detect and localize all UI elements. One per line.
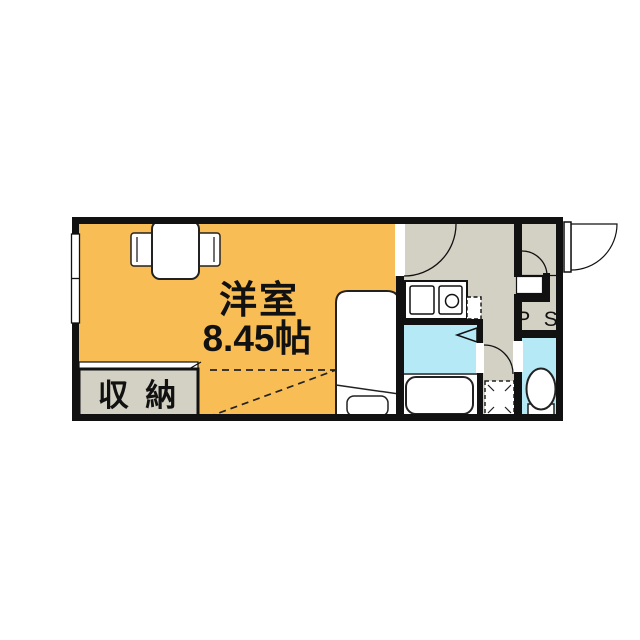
floorplan: 洋室 8.45帖 収 納 P S [0, 0, 640, 640]
burner [446, 295, 459, 308]
table [152, 221, 199, 279]
pipe-space-label: P S [516, 308, 561, 331]
wall-entry-nook [514, 217, 522, 277]
kitchen-door-opening [395, 224, 405, 276]
bathtub [406, 377, 473, 414]
toilet-door-opening [513, 341, 523, 372]
window [72, 234, 80, 323]
kitchen-counter [405, 281, 467, 319]
ps-wall-upper [543, 273, 550, 302]
washing-machine-space [485, 381, 514, 417]
room-name-label: 洋室 [219, 279, 299, 322]
washroom-floor [399, 322, 480, 374]
toilet-bowl [527, 369, 556, 410]
room-size-label: 8.45帖 [202, 318, 311, 359]
wall-kitchen-washroom [396, 319, 483, 325]
ps-wall-bottom [514, 330, 563, 338]
sink [410, 286, 434, 314]
entrance-door-leaf [564, 222, 571, 272]
toilet [527, 369, 556, 418]
refrigerator-space [467, 297, 481, 319]
entrance-door-swing [571, 224, 617, 270]
bed [336, 291, 399, 418]
washroom-door-opening [476, 343, 484, 373]
closet-label: 収 納 [98, 378, 181, 413]
entry-step-threshold [517, 277, 543, 294]
entrance-door [564, 222, 617, 272]
pillow [347, 396, 388, 416]
